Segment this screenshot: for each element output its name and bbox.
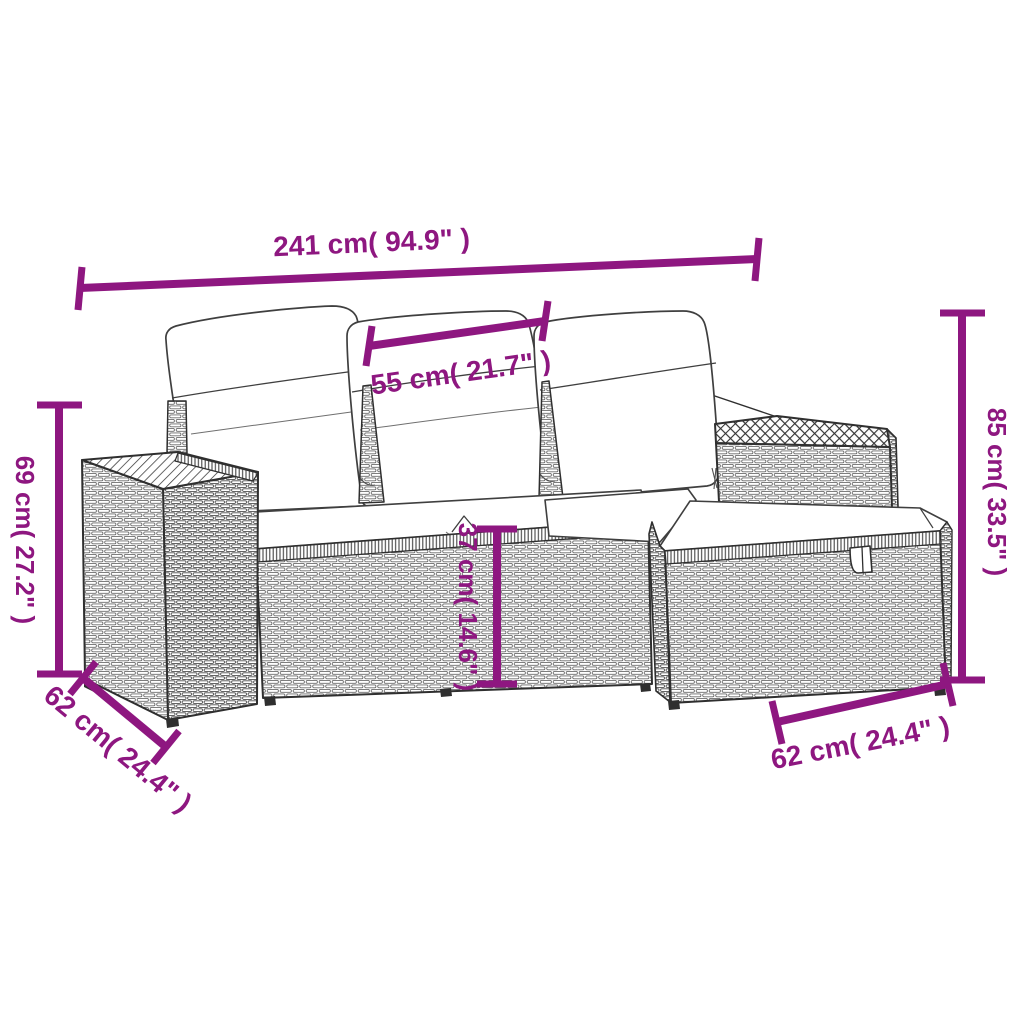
back-post-left xyxy=(167,401,187,453)
product-dimension-diagram: 241 cm( 94.9" ) 55 cm( 21.7" ) 69 cm( 27… xyxy=(0,0,1024,1024)
sofa-dimension-drawing: 241 cm( 94.9" ) 55 cm( 21.7" ) 69 cm( 27… xyxy=(0,0,1024,1024)
dim-overall-width-label: 241 cm( 94.9" ) xyxy=(273,223,471,263)
dim-arm-height: 69 cm( 27.2" ) xyxy=(10,405,82,674)
right-armrest xyxy=(715,416,898,509)
base-foot xyxy=(440,688,452,697)
base-foot xyxy=(640,683,651,692)
footstool xyxy=(649,522,952,710)
dim-arm-height-label: 69 cm( 27.2" ) xyxy=(10,456,40,624)
dim-seat-height-label: 37 cm( 14.6" ) xyxy=(453,523,483,691)
dim-overall-width: 241 cm( 94.9" ) xyxy=(78,223,759,310)
back-cushion-right xyxy=(534,311,719,500)
dim-back-height-label: 85 cm( 33.5" ) xyxy=(982,408,1012,576)
left-armrest xyxy=(82,452,258,728)
footstool-foot xyxy=(668,700,680,710)
base-foot xyxy=(264,696,276,706)
footstool-handle xyxy=(850,546,872,573)
